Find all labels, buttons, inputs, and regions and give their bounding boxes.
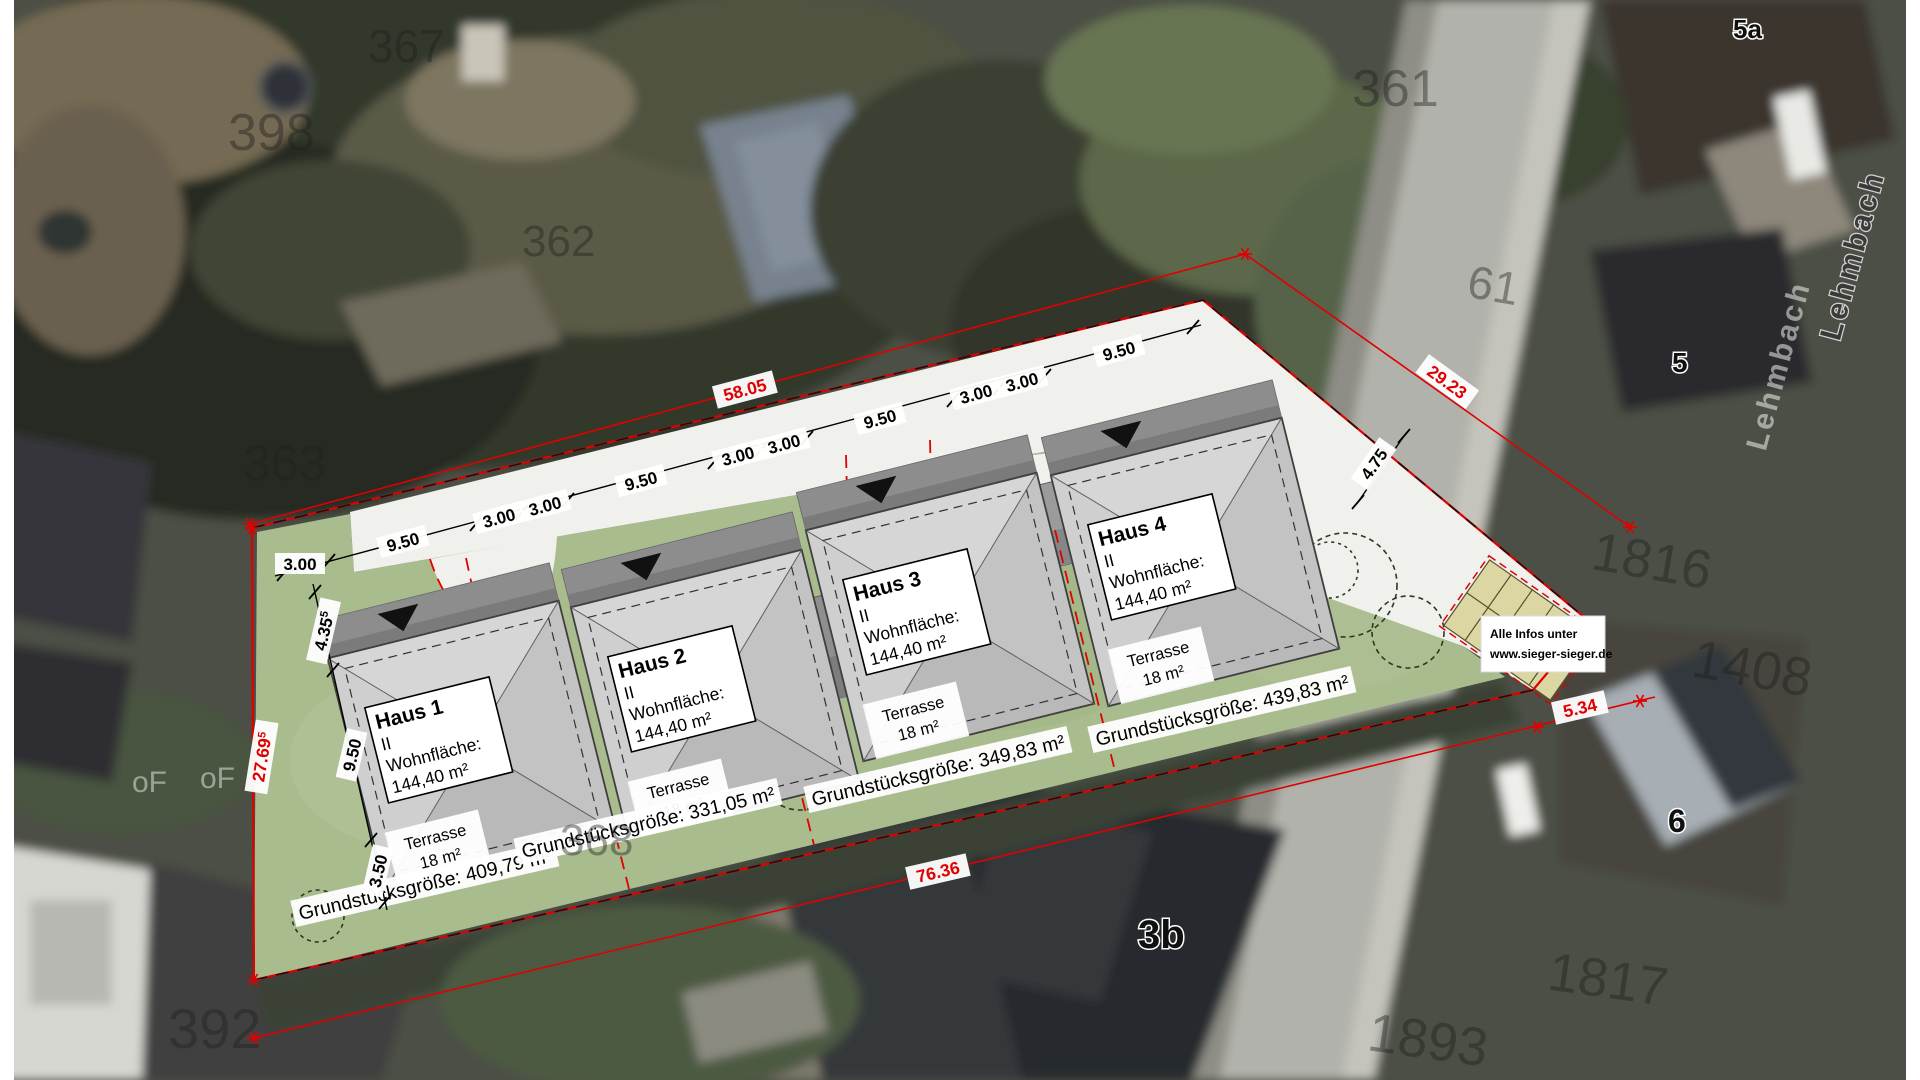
left-edge-strip — [0, 0, 14, 1080]
parcel-363: 363 — [243, 435, 326, 491]
house-number-3b: 3b — [1138, 913, 1185, 957]
plan-canvas: Haus 1 II Wohnfläche: 144,40 m² Terrasse… — [0, 0, 1920, 1080]
info-box-line1: Alle Infos unter — [1490, 627, 1578, 641]
parcel-392: 392 — [168, 997, 261, 1060]
parcel-61: 61 — [1464, 255, 1523, 315]
ghost-label-of-1: oF — [132, 766, 167, 799]
parcel-367: 367 — [368, 20, 445, 72]
house-number-5: 5 — [1672, 347, 1688, 378]
parcel-361: 361 — [1352, 60, 1439, 118]
right-edge-strip — [1906, 0, 1920, 1080]
house-number-5a: 5a — [1733, 14, 1762, 44]
parcel-368: 368 — [560, 816, 633, 865]
parcel-398: 398 — [228, 104, 315, 162]
ghost-label-of-2: oF — [200, 762, 235, 795]
info-box: Alle Infos unter www.sieger-sieger.de — [1481, 616, 1613, 672]
house-number-6: 6 — [1668, 803, 1686, 839]
info-box-link[interactable]: www.sieger-sieger.de — [1489, 647, 1613, 661]
site-plan-aerial-view: Haus 1 II Wohnfläche: 144,40 m² Terrasse… — [0, 0, 1920, 1080]
parcel-362: 362 — [522, 217, 595, 266]
dim-top-0: 3.00 — [283, 555, 316, 574]
